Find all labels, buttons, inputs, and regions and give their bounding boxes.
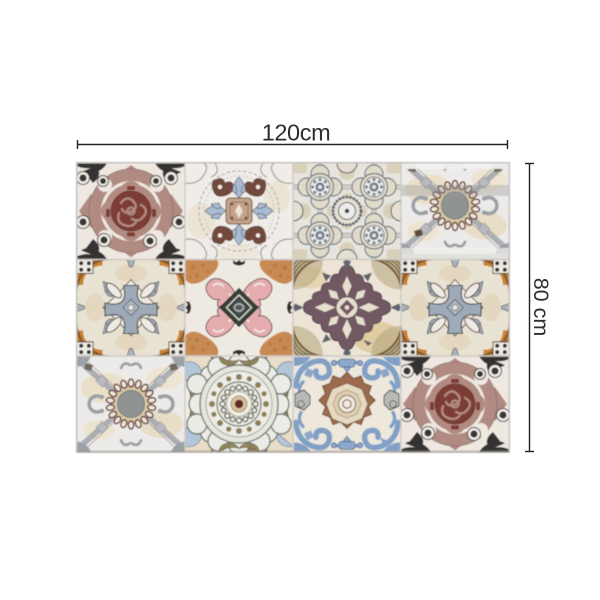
svg-text:80 cm: 80 cm	[529, 278, 553, 337]
svg-text:120cm: 120cm	[262, 120, 331, 146]
